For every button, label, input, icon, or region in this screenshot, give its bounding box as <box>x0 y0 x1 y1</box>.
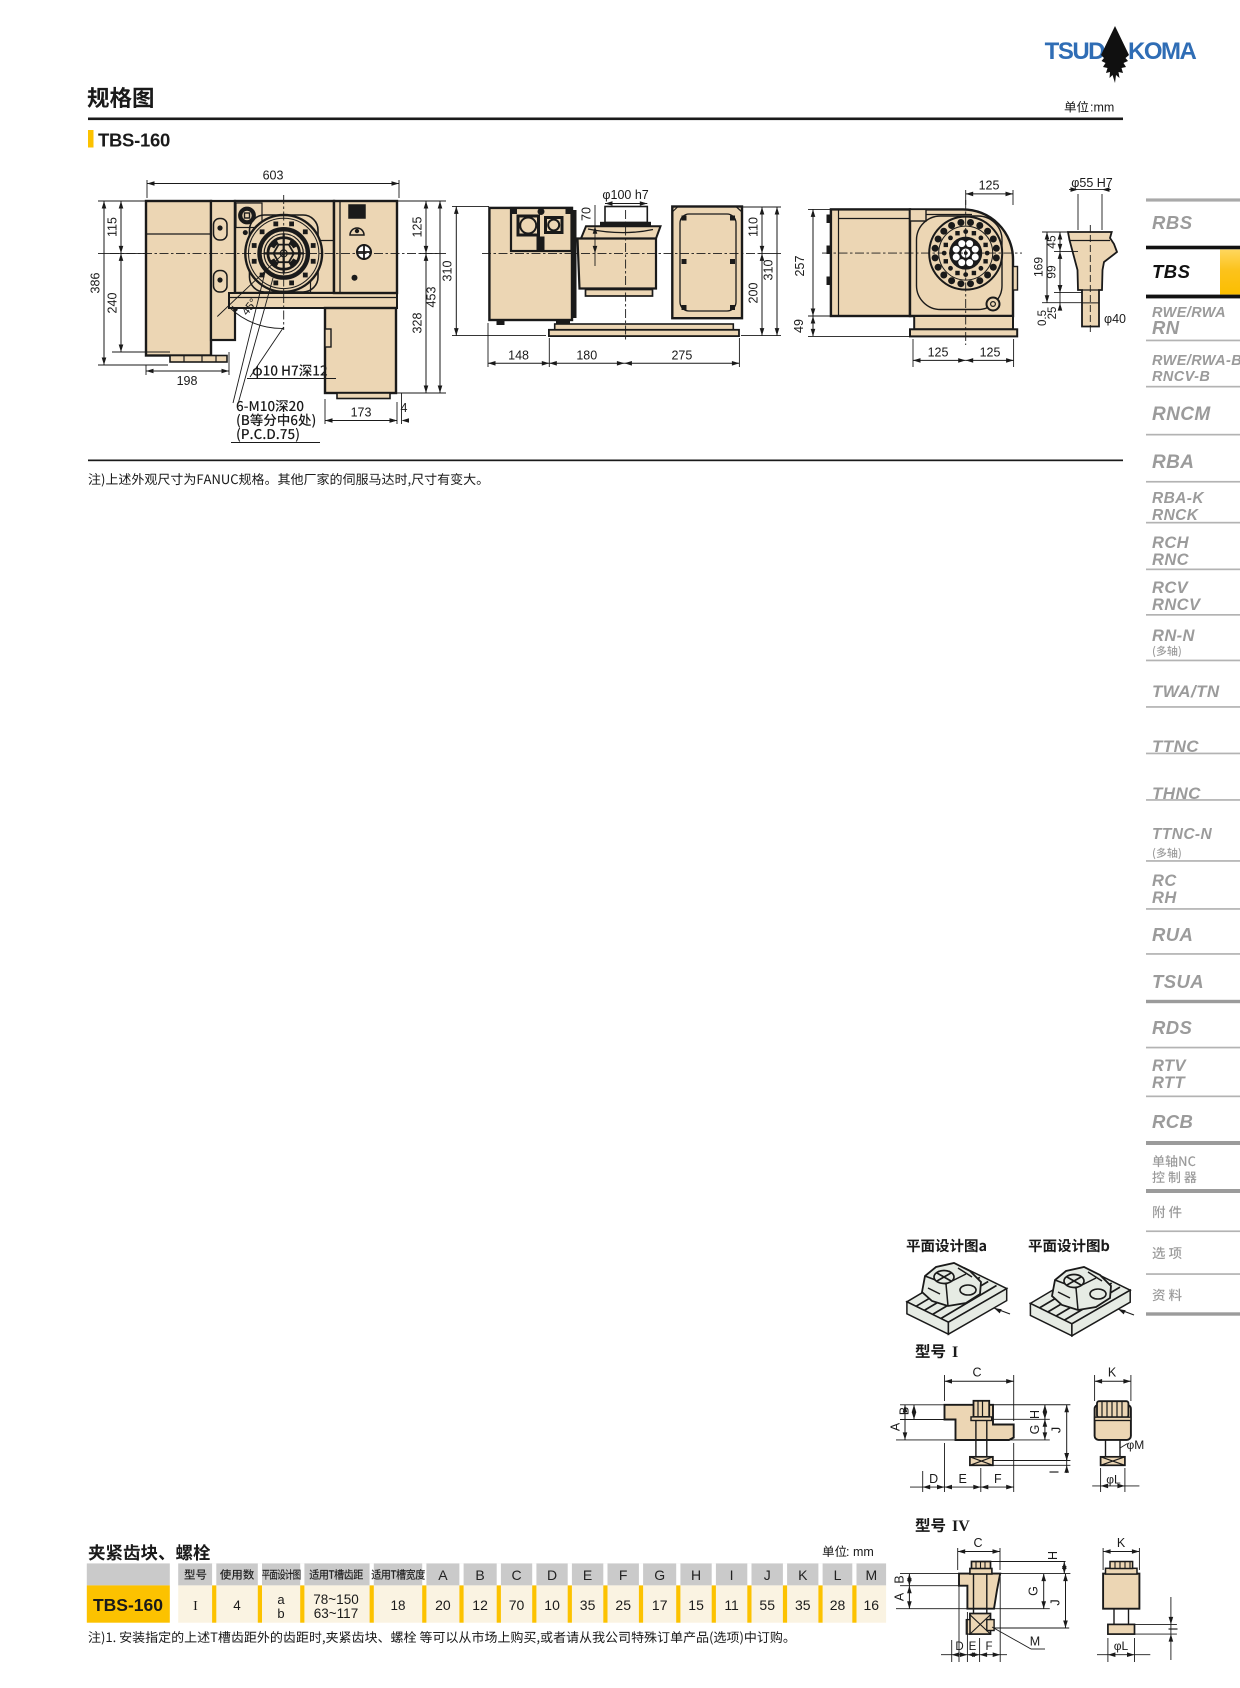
svg-text:E: E <box>583 1567 592 1583</box>
svg-text:70: 70 <box>509 1597 525 1613</box>
svg-text:10: 10 <box>544 1597 560 1613</box>
svg-text:D: D <box>547 1567 557 1583</box>
svg-text:TBS-160: TBS-160 <box>93 1595 163 1615</box>
svg-text:M: M <box>865 1567 877 1583</box>
svg-text:B: B <box>475 1567 484 1583</box>
svg-text:G: G <box>654 1567 665 1583</box>
svg-text:35: 35 <box>580 1597 596 1613</box>
svg-text:K: K <box>798 1567 808 1583</box>
svg-text:: mm: : mm <box>846 1545 874 1559</box>
svg-text:a: a <box>277 1592 285 1607</box>
svg-text:15: 15 <box>688 1597 704 1613</box>
svg-text:4: 4 <box>233 1598 241 1613</box>
svg-text:F: F <box>619 1567 628 1583</box>
svg-text:I: I <box>193 1599 198 1614</box>
svg-text:H: H <box>691 1567 701 1583</box>
svg-text:18: 18 <box>390 1598 405 1613</box>
svg-text:A: A <box>438 1567 448 1583</box>
svg-text:11: 11 <box>724 1597 739 1613</box>
svg-text:I: I <box>730 1567 734 1583</box>
svg-text:16: 16 <box>864 1597 880 1613</box>
svg-text:12: 12 <box>472 1597 488 1613</box>
svg-text:20: 20 <box>435 1597 451 1613</box>
svg-text:C: C <box>511 1567 521 1583</box>
svg-text:17: 17 <box>652 1597 668 1613</box>
svg-text:25: 25 <box>615 1597 631 1613</box>
svg-text:J: J <box>764 1567 771 1583</box>
svg-text:L: L <box>834 1567 842 1583</box>
svg-text:55: 55 <box>759 1597 775 1613</box>
svg-text:28: 28 <box>830 1597 846 1613</box>
svg-text:b: b <box>277 1606 284 1621</box>
svg-text:78~150: 78~150 <box>313 1592 358 1607</box>
svg-text:63~117: 63~117 <box>314 1606 358 1621</box>
svg-text:35: 35 <box>795 1597 811 1613</box>
